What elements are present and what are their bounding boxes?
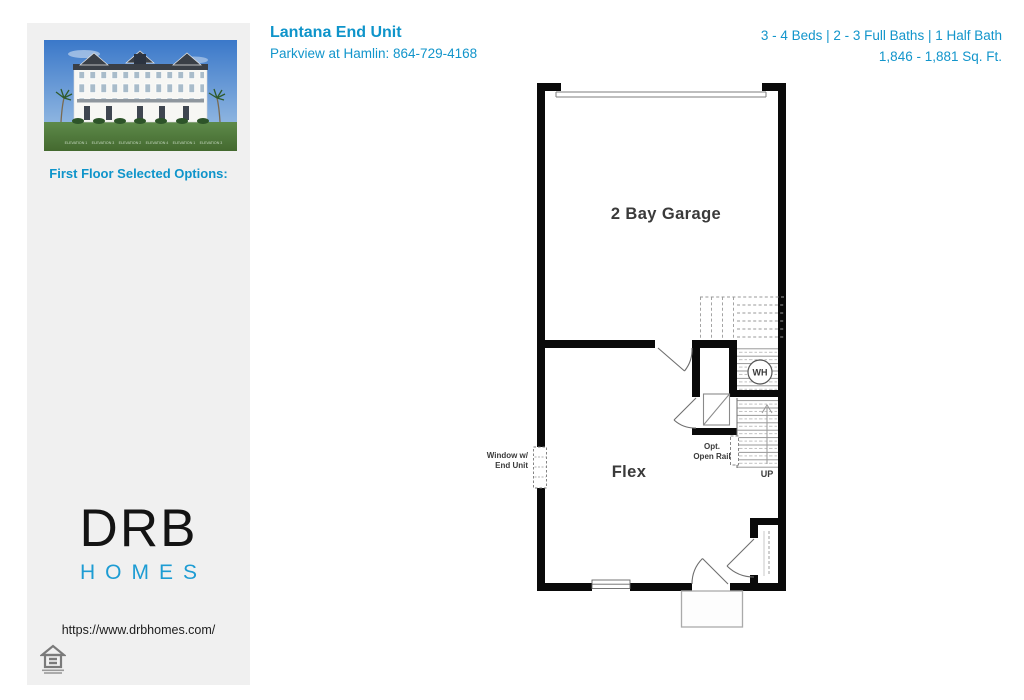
porch-stoop — [682, 591, 743, 627]
floorplan-drawing: WH UP — [480, 75, 800, 640]
logo-brand-text: DRB — [27, 501, 250, 557]
drb-homes-logo: DRB HOMES — [27, 501, 250, 585]
door-leaf-entry — [703, 559, 729, 585]
door-leaf-garage — [658, 348, 685, 371]
specs-beds-baths: 3 - 4 Beds | 2 - 3 Full Baths | 1 Half B… — [761, 25, 1002, 46]
door-arc-garage — [685, 348, 693, 371]
garage-door — [556, 92, 766, 97]
door-arc-closet — [674, 420, 696, 428]
selected-options-label: First Floor Selected Options: — [27, 166, 250, 181]
elevation-caption: ELEVATION 3 — [92, 141, 115, 145]
door-leaf-coat-closet — [727, 539, 754, 566]
logo-homes-text: HOMES — [27, 561, 250, 585]
opt-open-rail-label-line1: Opt. — [704, 442, 720, 451]
specs-sqft: 1,846 - 1,881 Sq. Ft. — [761, 46, 1002, 67]
window-end-unit-label-line2: End Unit — [495, 461, 528, 470]
window-end-unit-label-line1: Window w/ — [487, 451, 529, 460]
page-title: Lantana End Unit — [270, 24, 402, 42]
elevation-rendering: ELEVATION 1 ELEVATION 3 ELEVATION 2 ELEV… — [44, 40, 237, 151]
door-leaf-closet — [674, 398, 696, 420]
up-label: UP — [761, 469, 774, 479]
elevation-caption: ELEVATION 1 — [173, 141, 196, 145]
stair-lower-treads — [737, 398, 778, 468]
elevation-caption: ELEVATION 3 — [200, 141, 223, 145]
lawn — [44, 122, 237, 151]
sidebar-panel: ELEVATION 1 ELEVATION 3 ELEVATION 2 ELEV… — [27, 23, 250, 685]
community-phone-line: Parkview at Hamlin: 864-729-4168 — [270, 46, 477, 61]
room-label-garage: 2 Bay Garage — [611, 205, 721, 223]
stair-projection-dashed — [700, 297, 785, 339]
elevation-caption: ELEVATION 1 — [65, 141, 88, 145]
water-heater-label: WH — [753, 368, 768, 378]
window-left-wall — [534, 447, 547, 488]
window-bottom-wall — [592, 580, 630, 589]
door-arc-coat-closet — [727, 566, 754, 577]
flyer-page: ELEVATION 1 ELEVATION 3 ELEVATION 2 ELEV… — [0, 0, 1024, 700]
elevation-caption: ELEVATION 4 — [146, 141, 169, 145]
specs-block: 3 - 4 Beds | 2 - 3 Full Baths | 1 Half B… — [761, 25, 1002, 67]
website-url[interactable]: https://www.drbhomes.com/ — [27, 623, 250, 637]
opt-open-rail-symbol — [731, 436, 739, 465]
room-label-flex: Flex — [612, 463, 647, 481]
opt-open-rail-label-line2: Open Rail — [693, 452, 730, 461]
understair-storage-symbol — [704, 394, 730, 425]
equal-housing-icon — [40, 643, 66, 675]
door-arc-entry — [692, 559, 703, 585]
coat-closet-rod — [764, 531, 769, 576]
elevation-caption: ELEVATION 2 — [119, 141, 142, 145]
townhouse-building — [73, 51, 208, 122]
